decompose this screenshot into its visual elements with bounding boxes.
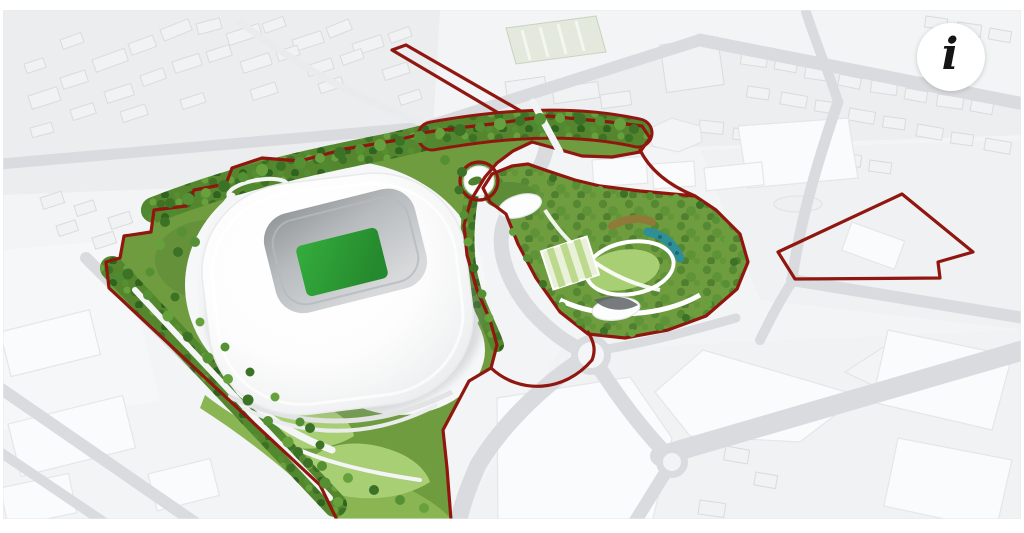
info-button[interactable]: i — [917, 23, 985, 91]
screenshot-root: i — [0, 0, 1024, 533]
info-icon: i — [942, 33, 959, 77]
masterplan-3d-render — [0, 0, 1024, 533]
roundabout-secondary — [656, 446, 688, 478]
